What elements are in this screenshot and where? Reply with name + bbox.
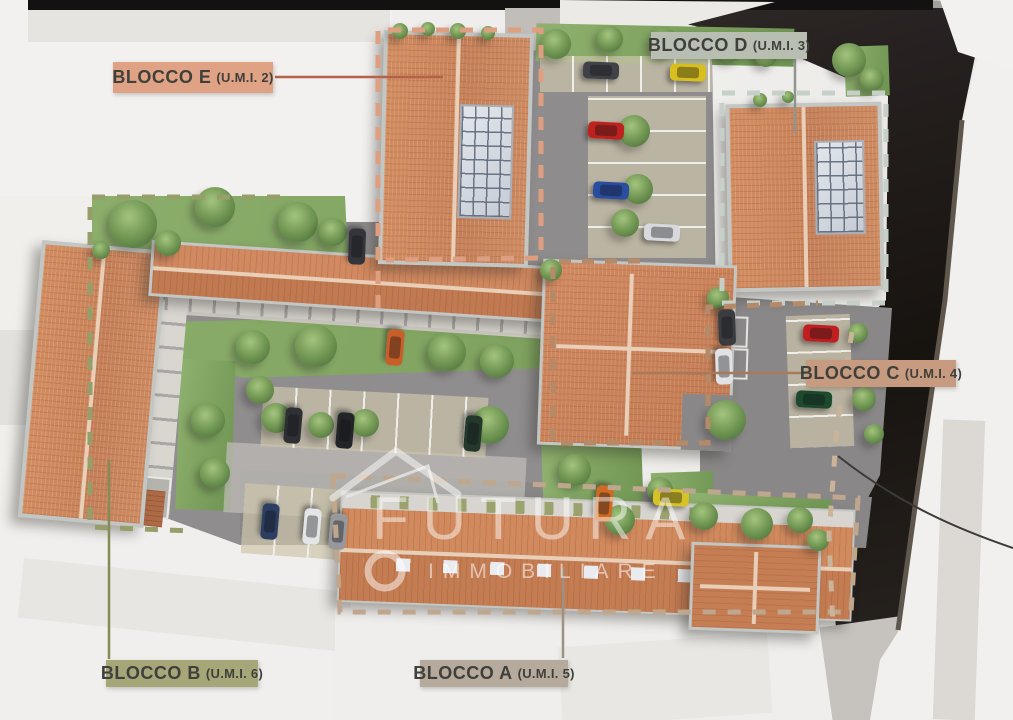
building-blocco-b-west-wing: [18, 240, 168, 528]
site-plan-rendering: FUTURA IMMOBILIARE BLOCCO E (U.M.I. 2) B…: [0, 0, 1013, 720]
tree: [559, 454, 591, 486]
tree: [308, 412, 334, 438]
tree: [200, 458, 230, 488]
tree: [597, 26, 623, 52]
car-glass: [306, 515, 319, 538]
tree: [741, 508, 773, 540]
car: [796, 390, 833, 409]
car-glass: [339, 419, 352, 442]
watermark-subtitle: IMMOBILIARE: [428, 560, 665, 584]
tree: [351, 409, 379, 437]
label-text: BLOCCO B: [101, 663, 201, 684]
car-glass: [351, 235, 363, 257]
car-glass: [721, 316, 733, 338]
car-glass: [718, 355, 730, 377]
tree: [860, 67, 884, 91]
car-glass: [389, 336, 402, 359]
car: [283, 407, 303, 444]
tree: [392, 23, 408, 39]
tree: [481, 26, 495, 40]
tree: [753, 93, 767, 107]
tree: [428, 333, 466, 371]
tree: [540, 259, 562, 281]
solar-panel-array-e: [457, 104, 514, 219]
tree: [278, 202, 318, 242]
car-glass: [677, 67, 699, 79]
tree: [782, 91, 794, 103]
car-glass: [595, 124, 618, 136]
label-blocco-c: BLOCCO C (U.M.I. 4): [806, 360, 956, 387]
car-glass: [810, 327, 833, 339]
car: [715, 348, 733, 385]
label-umi: (U.M.I. 5): [518, 666, 575, 681]
tree: [706, 400, 746, 440]
massing-bottom-center-facet: [557, 633, 772, 720]
tree: [852, 387, 876, 411]
label-umi: (U.M.I. 2): [216, 70, 273, 85]
tree: [191, 403, 225, 437]
car: [803, 324, 840, 343]
watermark-brand: FUTURA: [372, 484, 699, 553]
car: [348, 228, 366, 265]
tree: [707, 287, 729, 309]
car-glass: [600, 184, 623, 196]
car: [328, 513, 348, 550]
car: [588, 121, 625, 140]
solar-panel-array-d: [814, 140, 866, 235]
car-glass: [803, 393, 826, 405]
label-blocco-e: BLOCCO E (U.M.I. 2): [113, 62, 273, 93]
tree: [295, 325, 337, 367]
tree: [480, 344, 514, 378]
building-a-east-annex: [689, 542, 822, 634]
label-blocco-d: BLOCCO D (U.M.I. 3): [651, 32, 807, 59]
car: [718, 309, 736, 346]
tree: [787, 507, 813, 533]
label-blocco-a: BLOCCO A (U.M.I. 5): [420, 660, 568, 687]
roof-slope: [382, 34, 459, 262]
massing-top-left-facet: [28, 10, 390, 42]
car: [593, 181, 630, 200]
car: [463, 415, 483, 452]
car-glass: [467, 422, 480, 445]
tree: [541, 29, 571, 59]
car-glass: [651, 226, 674, 238]
tree: [155, 230, 181, 256]
car: [583, 61, 620, 79]
car-glass: [590, 65, 612, 77]
roof-slope: [729, 107, 806, 288]
car: [670, 63, 707, 81]
label-text: BLOCCO E: [112, 67, 211, 88]
tree: [319, 218, 347, 246]
car: [260, 503, 280, 540]
tree: [450, 23, 466, 39]
building-blocco-d: [725, 102, 884, 293]
car-glass: [332, 520, 345, 543]
tree: [195, 187, 235, 227]
tree: [848, 323, 868, 343]
car-glass: [264, 510, 277, 533]
tree: [611, 209, 639, 237]
tree: [421, 22, 435, 36]
tree: [236, 330, 270, 364]
tree: [109, 200, 157, 248]
tree: [92, 241, 110, 259]
label-umi: (U.M.I. 6): [206, 666, 263, 681]
car: [644, 223, 681, 242]
car: [385, 329, 405, 366]
tree: [807, 529, 829, 551]
car: [335, 412, 355, 449]
car-glass: [287, 414, 300, 437]
label-umi: (U.M.I. 4): [905, 366, 962, 381]
label-blocco-b: BLOCCO B (U.M.I. 6): [106, 660, 258, 687]
building-blocco-e: [378, 30, 534, 268]
label-text: BLOCCO C: [800, 363, 900, 384]
tree: [246, 376, 274, 404]
top-edge-bar: [28, 0, 933, 10]
tree: [864, 424, 884, 444]
car: [302, 508, 322, 545]
label-text: BLOCCO D: [648, 35, 748, 56]
label-text: BLOCCO A: [413, 663, 512, 684]
label-umi: (U.M.I. 3): [753, 38, 810, 53]
